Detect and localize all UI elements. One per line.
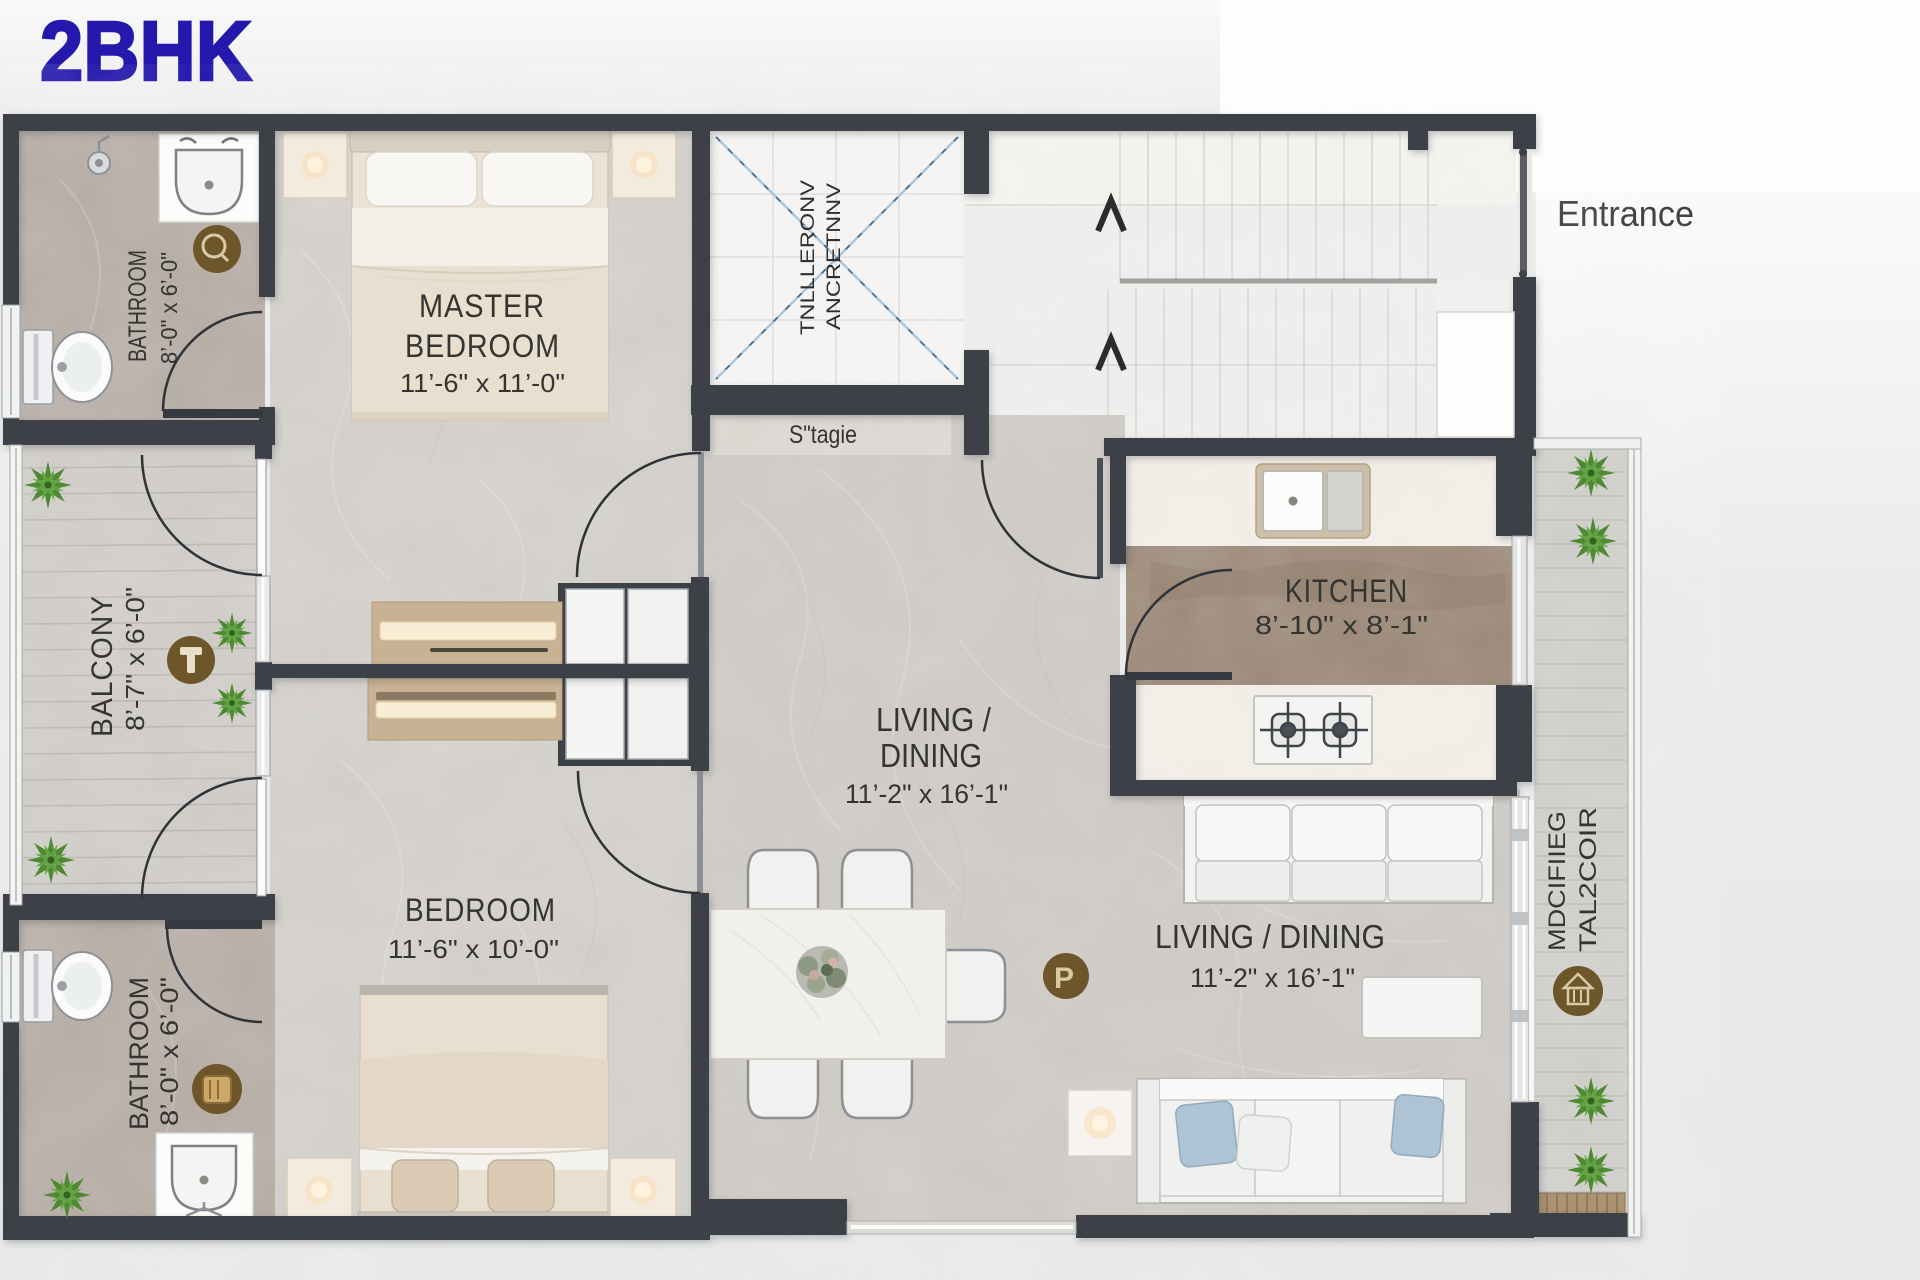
svg-text:TAL2COIR: TAL2COIR	[1575, 807, 1602, 952]
svg-text:MASTER: MASTER	[419, 288, 545, 324]
svg-text:BEDROOM: BEDROOM	[405, 328, 560, 364]
svg-text:S"tagie: S"tagie	[789, 421, 857, 449]
svg-text:LIVING /: LIVING /	[876, 701, 992, 738]
svg-text:8’-0" x 6’-0": 8’-0" x 6’-0"	[156, 977, 184, 1126]
svg-text:8’-7" x 6’-0": 8’-7" x 6’-0"	[120, 587, 150, 731]
svg-text:TNLLLERONV: TNLLLERONV	[798, 180, 819, 335]
svg-text:8’-0" x 6’-0": 8’-0" x 6’-0"	[156, 252, 182, 364]
svg-text:P: P	[1054, 962, 1074, 995]
svg-text:2BHK: 2BHK	[40, 4, 252, 98]
svg-text:11’-6" x 11’-0": 11’-6" x 11’-0"	[400, 368, 565, 398]
svg-text:11’-2" x 16’-1": 11’-2" x 16’-1"	[845, 779, 1008, 809]
svg-text:BATHROOM: BATHROOM	[124, 977, 154, 1130]
svg-text:BATHROOM: BATHROOM	[124, 250, 152, 362]
svg-text:ANCRETNNV: ANCRETNNV	[824, 183, 845, 330]
svg-text:8’-10" x 8’-1": 8’-10" x 8’-1"	[1255, 610, 1428, 640]
svg-text:LIVING / DINING: LIVING / DINING	[1155, 918, 1385, 955]
svg-text:BALCONY: BALCONY	[86, 595, 119, 737]
svg-text:BEDROOM: BEDROOM	[405, 892, 556, 928]
svg-text:MDCIFIIEG: MDCIFIIEG	[1544, 811, 1571, 951]
svg-text:11’-6" x 10’-0": 11’-6" x 10’-0"	[388, 934, 559, 964]
svg-text:KITCHEN: KITCHEN	[1285, 573, 1408, 609]
svg-text:DINING: DINING	[880, 737, 982, 774]
svg-text:11’-2" x 16’-1": 11’-2" x 16’-1"	[1190, 963, 1355, 993]
